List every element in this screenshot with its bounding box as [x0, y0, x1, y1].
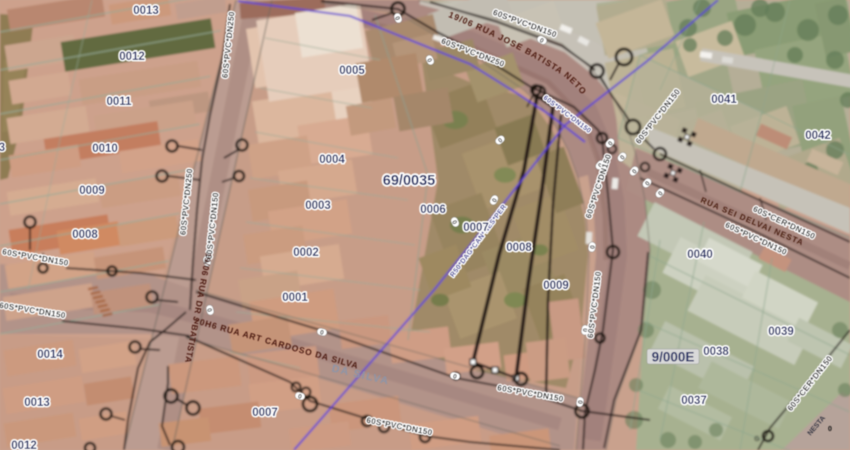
svg-text:0010: 0010 [92, 143, 118, 155]
svg-text:0008: 0008 [506, 242, 532, 254]
svg-text:0013: 0013 [133, 5, 159, 17]
svg-text:0039: 0039 [768, 326, 794, 338]
svg-text:3: 3 [0, 142, 5, 154]
svg-text:0011: 0011 [107, 96, 133, 108]
svg-text:0041: 0041 [711, 94, 737, 106]
svg-text:9/000E: 9/000E [652, 350, 695, 365]
svg-text:0012: 0012 [119, 51, 145, 63]
svg-text:0009: 0009 [79, 185, 105, 197]
svg-text:69/0035: 69/0035 [383, 173, 435, 189]
svg-text:0013: 0013 [24, 397, 50, 409]
svg-text:0003: 0003 [305, 200, 331, 212]
svg-text:0038: 0038 [703, 346, 729, 358]
svg-text:G: G [754, 436, 760, 443]
svg-text:0002: 0002 [293, 247, 319, 259]
svg-text:0006: 0006 [420, 204, 446, 216]
svg-text:0037: 0037 [681, 395, 707, 407]
svg-text:0040: 0040 [687, 249, 713, 261]
svg-text:0009: 0009 [543, 280, 569, 292]
svg-text:0042: 0042 [805, 130, 831, 142]
svg-text:0001: 0001 [282, 292, 308, 304]
svg-text:0: 0 [828, 426, 832, 433]
svg-text:0012: 0012 [11, 440, 37, 450]
svg-text:0014: 0014 [37, 349, 63, 361]
svg-text:0007: 0007 [463, 222, 489, 234]
svg-text:0004: 0004 [319, 154, 345, 166]
svg-text:0005: 0005 [339, 65, 365, 77]
svg-text:0008: 0008 [72, 229, 98, 241]
svg-text:0007: 0007 [252, 407, 278, 419]
